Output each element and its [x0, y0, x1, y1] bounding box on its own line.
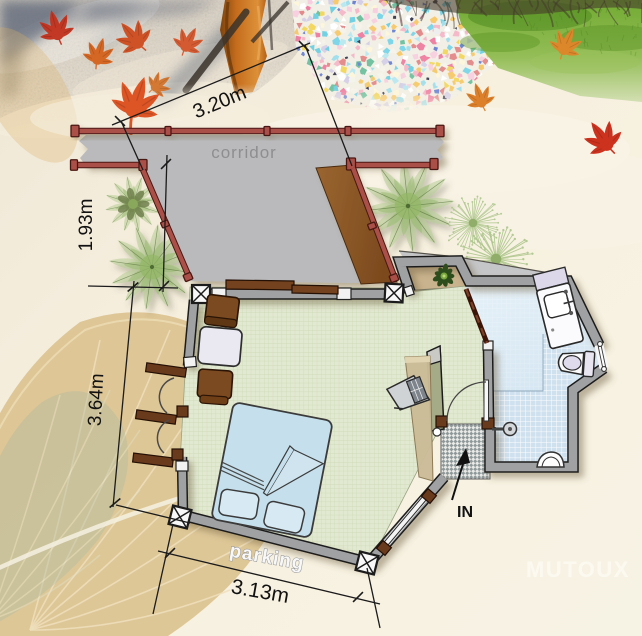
svg-text:1.93m: 1.93m: [76, 199, 97, 252]
svg-text:IN: IN: [457, 504, 473, 521]
svg-text:3.64m: 3.64m: [85, 373, 109, 427]
svg-text:corridor: corridor: [211, 143, 277, 162]
svg-text:MUTOUX: MUTOUX: [526, 557, 630, 582]
